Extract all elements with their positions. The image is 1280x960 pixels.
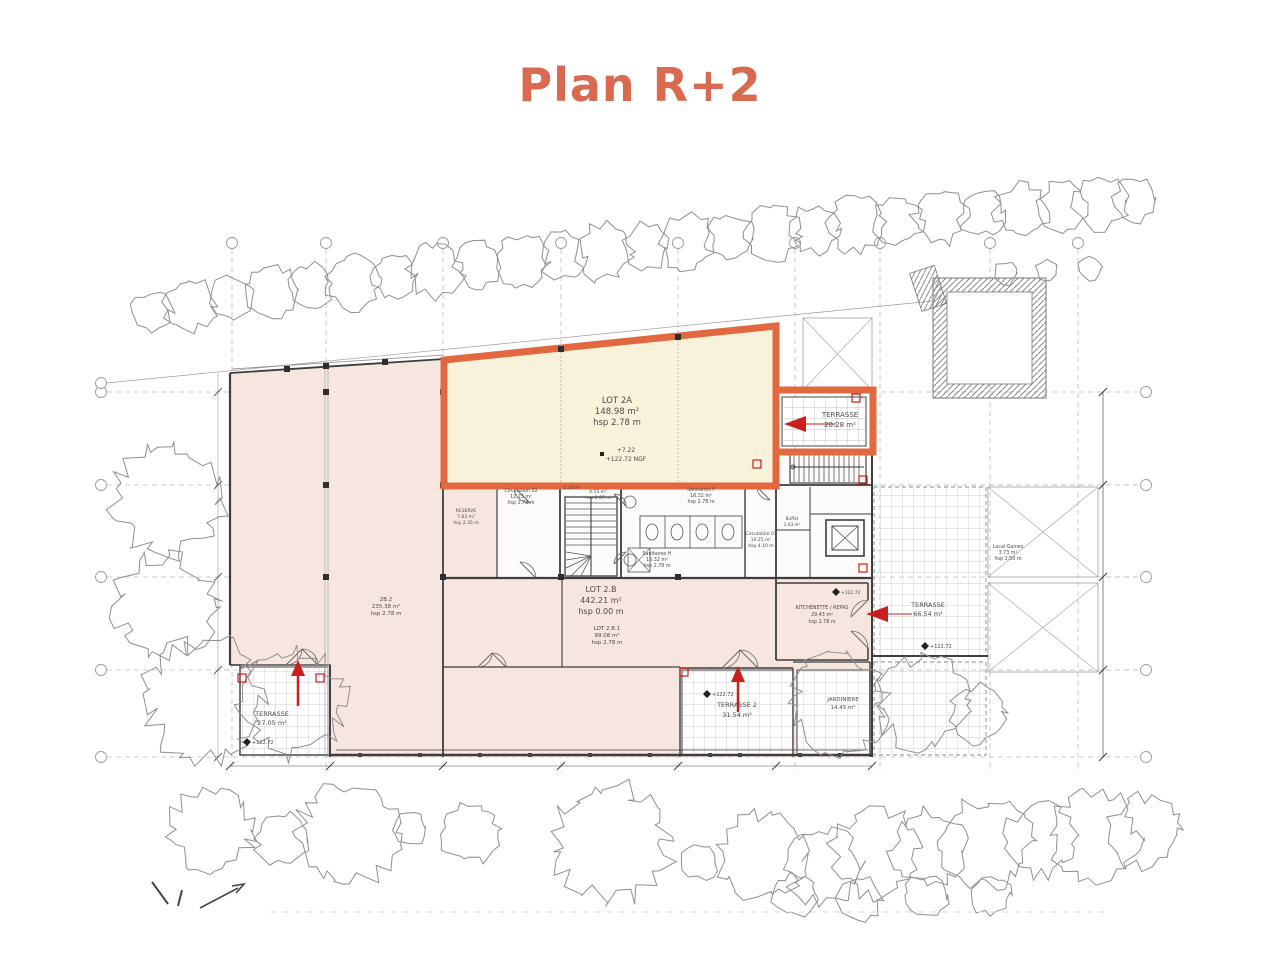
plan-label: hsp 2.78 m (592, 640, 623, 646)
plan-label: JARDINIERE (826, 697, 859, 703)
plan-label: +122.72 (712, 692, 734, 698)
plan-label: hsp 2.35 m (453, 520, 478, 526)
plan-label: 20.28 m² (824, 421, 856, 429)
plan-label: hsp 2.78 m (809, 619, 836, 625)
plan-label: Buffet (786, 516, 799, 521)
plan-label: LOT 2A (602, 396, 632, 406)
plan-label: Sanitaires H (643, 551, 672, 557)
plan-label: hsp 2.78 m (593, 418, 641, 428)
plan-label: +122.72 (930, 644, 952, 650)
plan-label: 16.32 m² (690, 493, 712, 499)
plan-label: 3.73 m² (999, 550, 1018, 556)
plan-label: 148.98 m² (595, 407, 639, 417)
plan-label: +122.72 NGF (606, 456, 647, 463)
plan-label: 2.28 m² (564, 485, 581, 490)
plan-label: LOT 2.B.1 (594, 626, 621, 632)
plan-label: KITCHENETTE / REPAS (796, 605, 849, 611)
plan-label: RESERVE (456, 508, 477, 514)
plan-label: 14.45 m² (830, 704, 855, 711)
plan-label: 235.38 m² (372, 603, 401, 610)
plan-label: 442.21 m² (580, 596, 622, 605)
plan-label: hsp 4.10 m (748, 543, 773, 549)
plan-label: 27.05 m² (257, 719, 287, 727)
plan-label: hsp 2.78 m (644, 563, 671, 569)
plan-label: LOT 2.B (585, 585, 616, 594)
plan-label: hsp 2.78 m (688, 499, 715, 505)
plan-label: hsp 2.78 m (508, 500, 535, 506)
plan-label: 31.54 m² (722, 711, 752, 719)
plan-label: TERRASSE (910, 601, 945, 609)
plan-label: Circulation 01 (745, 531, 776, 537)
plan-label: +122.72 (841, 590, 861, 596)
plan-label: hsp 2.07 m (585, 495, 610, 501)
plan-label: hsp 2.50 m (995, 556, 1022, 562)
plan-label: 7.63 m² (457, 514, 475, 520)
plan-label: hsp 0.00 m (578, 607, 623, 616)
plan-label: 2.43 m² (784, 522, 801, 527)
plan-label: +7.22 (617, 447, 636, 454)
plan-label: Local Gaines (993, 544, 1024, 550)
floor-plan: LOT 2A148.98 m²hsp 2.78 m+7.22+122.72 NG… (0, 0, 1280, 960)
plan-label: TERRASSE (821, 411, 858, 419)
plan-label: hsp 2.78 m (371, 611, 402, 617)
plan-label: TERRASSE (254, 710, 289, 718)
plan-label: TERRASSE 2 (716, 701, 757, 709)
plan-label: Circulation 02 (504, 488, 537, 494)
plan-label: 2B.2 (380, 597, 393, 603)
plan-label: 4.55 m² (589, 489, 607, 495)
plan-label: 12.23 m² (510, 494, 532, 500)
plan-label: Sanitaires F (687, 487, 715, 493)
plan-page: Plan R+2 LOT 2A148.98 m²hsp 2.78 m+7.22+… (0, 0, 1280, 960)
plan-label: 99.08 m² (594, 632, 619, 639)
plan-label: 10.25 m² (751, 537, 772, 543)
plan-label: 15.32 m² (646, 557, 668, 563)
plan-label: 29.43 m² (811, 612, 833, 618)
plan-label: +122.72 (252, 740, 274, 746)
plan-label: 66.54 m² (913, 610, 943, 618)
